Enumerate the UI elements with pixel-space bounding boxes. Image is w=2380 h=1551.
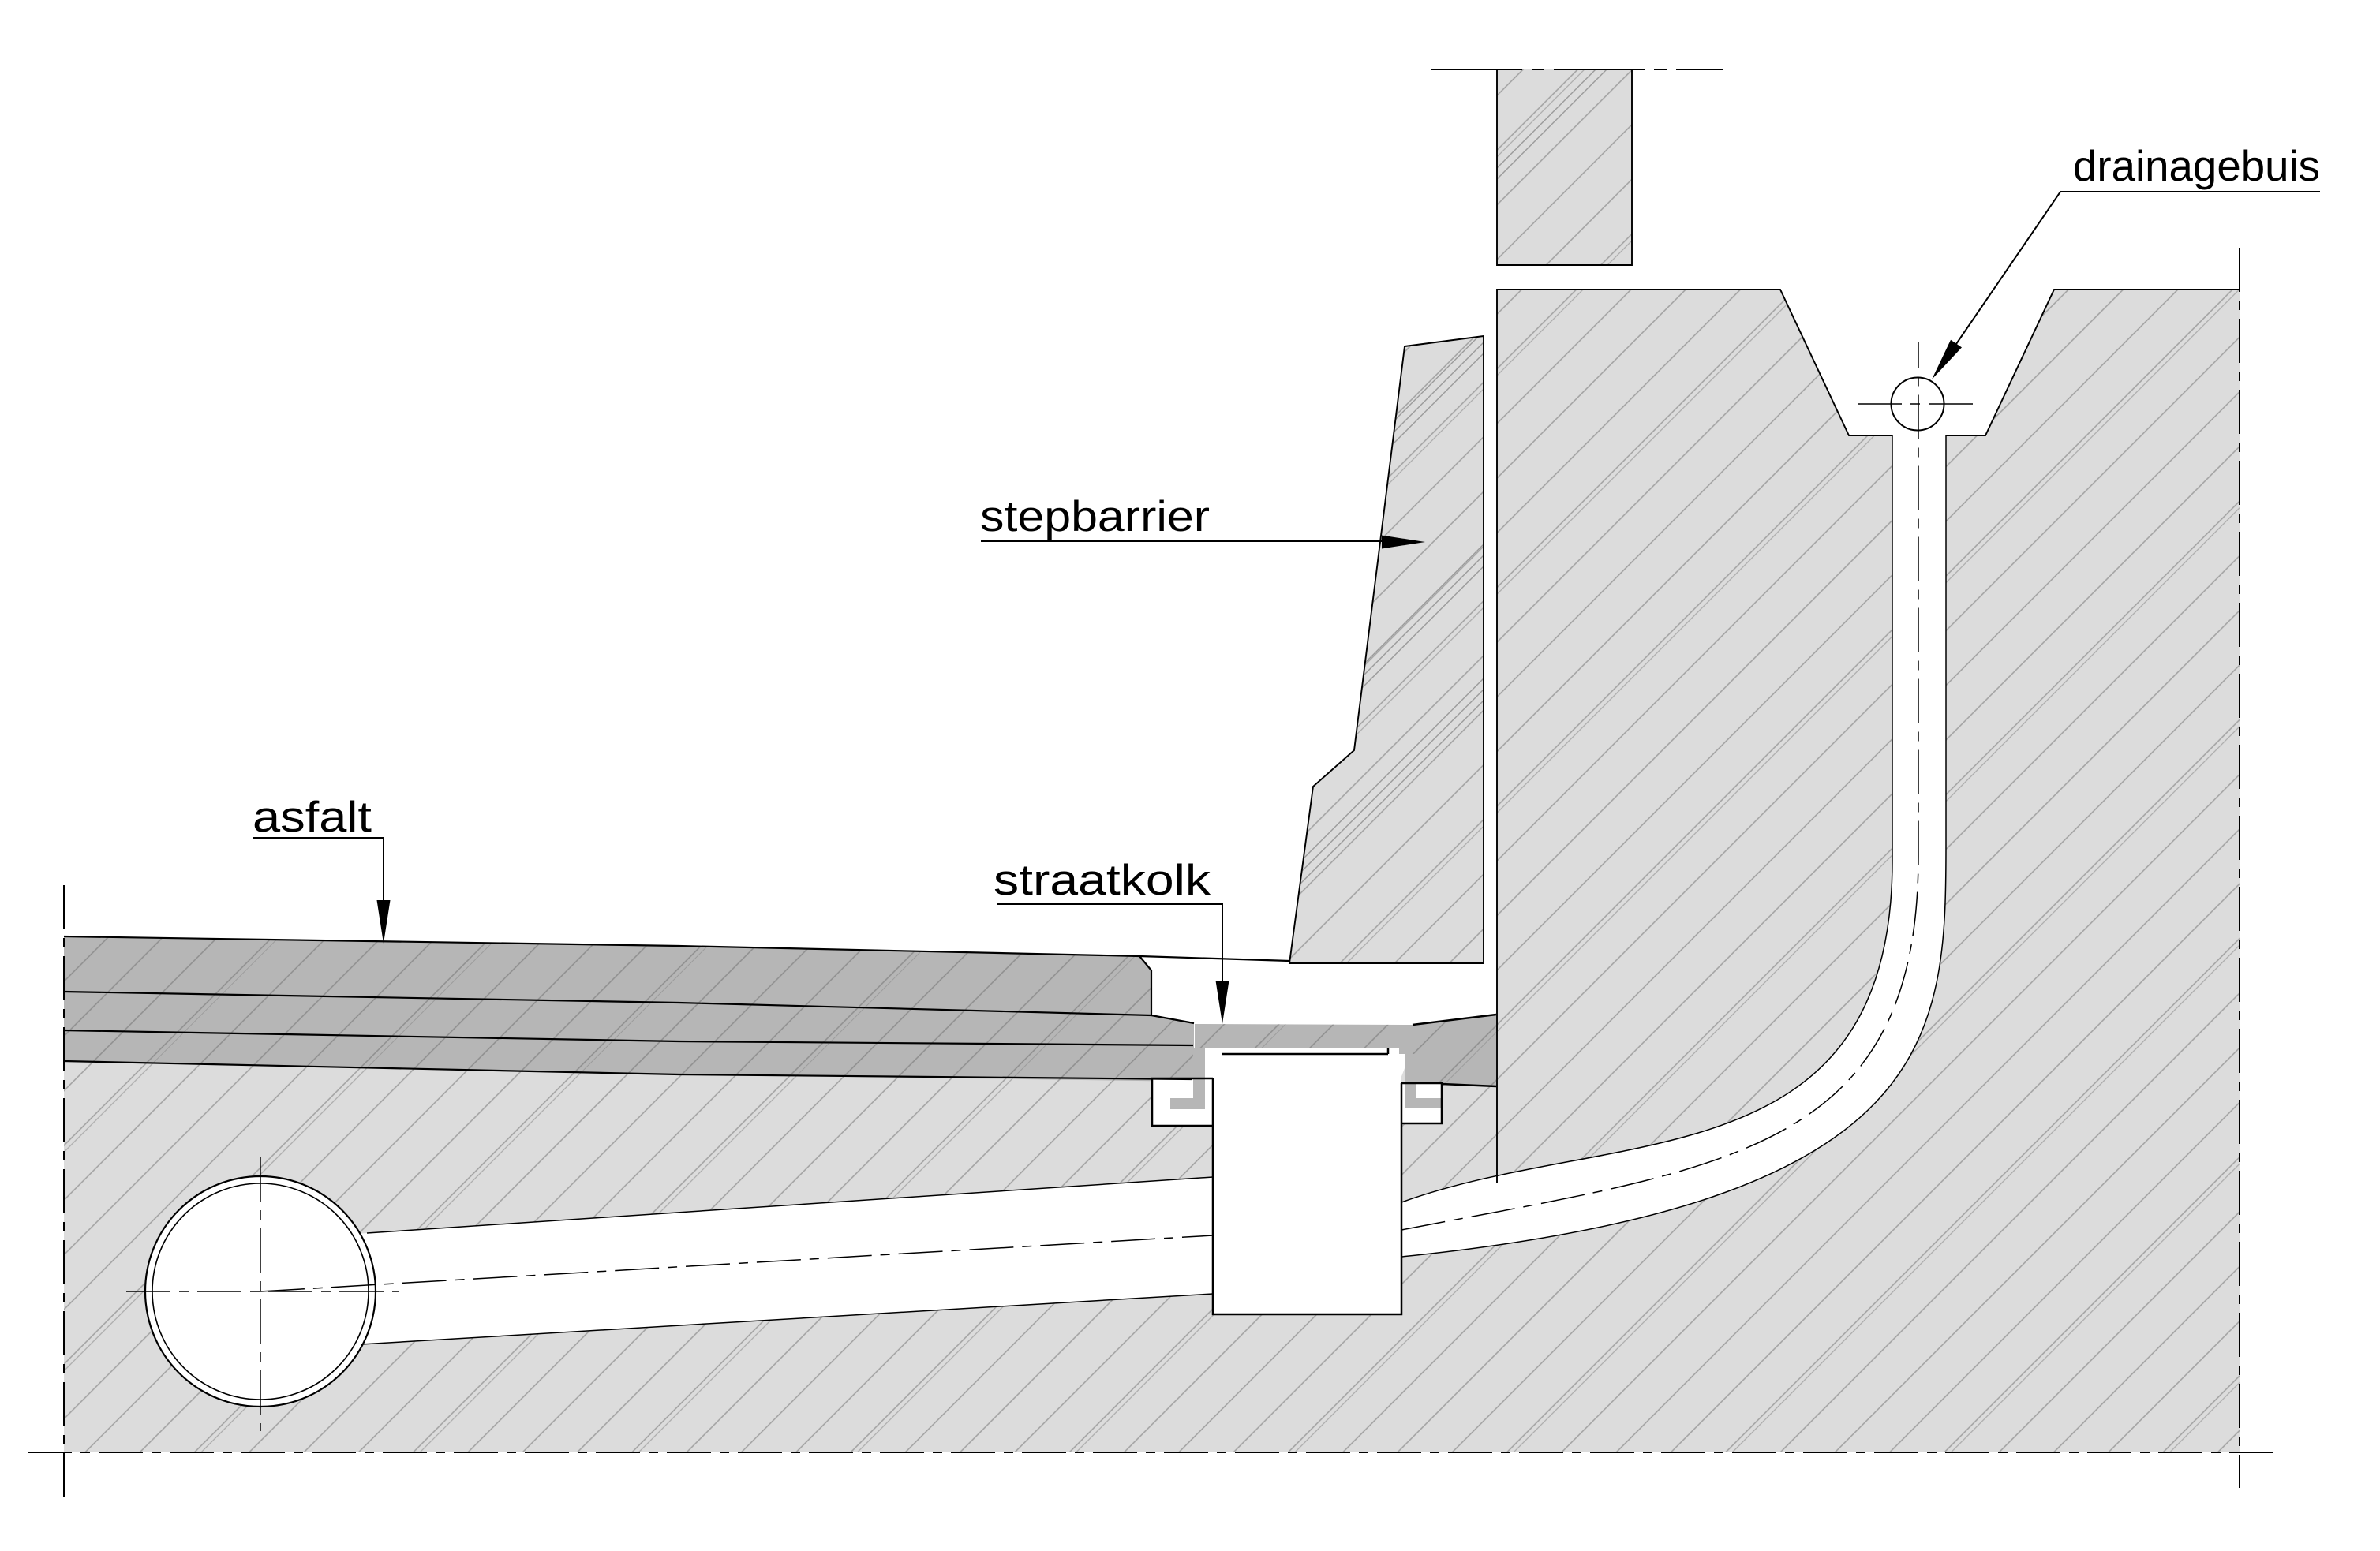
svg-text:asfalt: asfalt xyxy=(253,792,372,841)
svg-text:drainagebuis: drainagebuis xyxy=(2073,141,2320,190)
svg-text:straatkolk: straatkolk xyxy=(994,855,1211,904)
svg-text:stepbarrier: stepbarrier xyxy=(980,491,1210,540)
